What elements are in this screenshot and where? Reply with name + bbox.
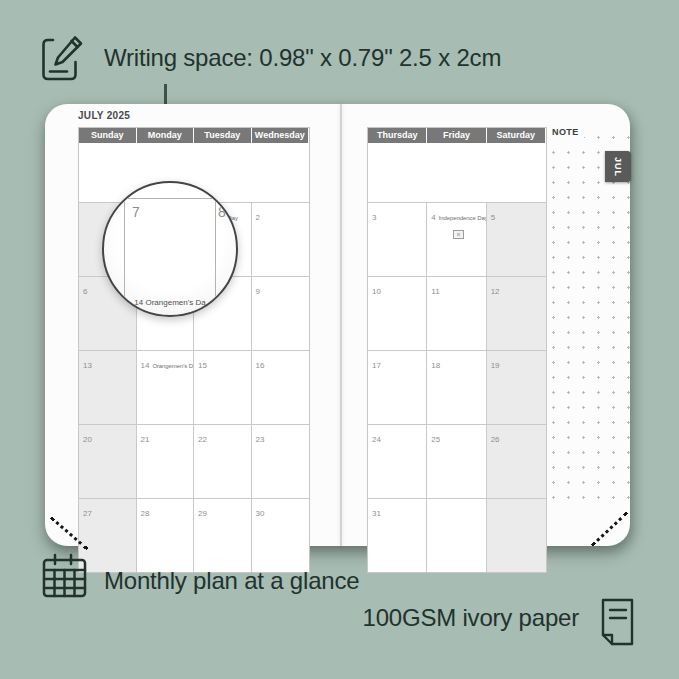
day-header-sunday: Sunday	[79, 128, 137, 143]
day-number: 10	[372, 287, 381, 296]
day-header-friday: Friday	[427, 128, 486, 143]
holiday-label: Independence Day	[439, 215, 487, 221]
calendar-cell: 13	[79, 350, 137, 424]
page-title: JULY 2025	[78, 110, 130, 121]
calendar-cell: 16	[252, 350, 310, 424]
note-pencil-icon	[37, 33, 86, 84]
calendar-cell: 26	[487, 424, 546, 498]
paper-sheet-icon	[594, 596, 640, 649]
month-tab-label: JUL	[613, 156, 623, 176]
day-number: 18	[431, 361, 440, 370]
day-number: 9	[256, 287, 260, 296]
calendar-cell: 5	[487, 202, 546, 276]
calendar-cell	[487, 498, 546, 572]
calendar-cell: 25	[427, 424, 486, 498]
day-header-wednesday: Wednesday	[252, 128, 310, 143]
planner-spread: JULY 2025 SundayMondayTuesdayWednesday1C…	[45, 104, 630, 546]
day-number: 27	[83, 509, 92, 518]
day-number: 16	[256, 361, 265, 370]
calendar-cell: 29	[194, 498, 252, 572]
flag-row	[431, 225, 484, 243]
day-number: 2	[256, 213, 260, 222]
magnifier-circle: 7 8 14 Orangemen's Da	[102, 181, 238, 317]
calendar-cell: 12	[487, 276, 546, 350]
calendar-cell: 10	[368, 276, 427, 350]
calendar-cell: 20	[79, 424, 137, 498]
day-number: 17	[372, 361, 381, 370]
calendar-icon	[39, 551, 90, 602]
day-number: 12	[491, 287, 500, 296]
us-flag-icon	[453, 230, 464, 239]
day-number: 6	[83, 287, 87, 296]
day-header-monday: Monday	[137, 128, 195, 143]
day-number: 26	[491, 435, 500, 444]
calendar-grid-right: ThursdayFridaySaturday34Independence Day…	[367, 127, 547, 573]
day-number: 31	[372, 509, 381, 518]
calendar-cell: 17	[368, 350, 427, 424]
note-dot-grid: NOTE	[552, 127, 630, 511]
day-header-thursday: Thursday	[368, 128, 427, 143]
day-header-tuesday: Tuesday	[194, 128, 252, 143]
calendar-cell: 24	[368, 424, 427, 498]
writing-space-label: Writing space: 0.98" x 0.79" 2.5 x 2cm	[104, 44, 501, 72]
day-number: 24	[372, 435, 381, 444]
monthly-plan-label: Monthly plan at a glance	[104, 567, 359, 595]
day-number: 23	[256, 435, 265, 444]
day-number: 13	[83, 361, 92, 370]
calendar-cell: 11	[427, 276, 486, 350]
calendar-cell: 31	[368, 498, 427, 572]
day-number: 11	[431, 287, 439, 296]
calendar-cell: 23	[252, 424, 310, 498]
calendar-cell: 21	[137, 424, 195, 498]
day-header-saturday: Saturday	[487, 128, 546, 143]
day-number: 29	[198, 509, 207, 518]
calendar-cell: 15	[194, 350, 252, 424]
calendar-cell: 22	[194, 424, 252, 498]
day-number: 25	[431, 435, 440, 444]
holiday-label: Orangemen's Day	[152, 363, 194, 369]
calendar-cell: 9	[252, 276, 310, 350]
day-number: 3	[372, 213, 376, 222]
day-number: 4	[431, 213, 435, 222]
product-image: Writing space: 0.98" x 0.79" 2.5 x 2cm J…	[0, 0, 679, 679]
month-tab-jul: JUL	[605, 151, 631, 182]
calendar-cell: 18	[427, 350, 486, 424]
calendar-cell	[427, 498, 486, 572]
day-number: 28	[141, 509, 150, 518]
spine-divider	[340, 104, 342, 546]
calendar-cell: 3	[368, 202, 427, 276]
day-number: 14	[141, 361, 150, 370]
calendar-cell: 4Independence Day	[427, 202, 486, 276]
calendar-cell: 28	[137, 498, 195, 572]
day-number: 15	[198, 361, 207, 370]
magnified-day-number: 7	[132, 204, 140, 220]
calendar-cell: 19	[487, 350, 546, 424]
day-number: 20	[83, 435, 92, 444]
day-number: 22	[198, 435, 207, 444]
day-number: 19	[491, 361, 500, 370]
note-label: NOTE	[552, 127, 584, 139]
day-number: 30	[256, 509, 265, 518]
day-number: 21	[141, 435, 150, 444]
day-number: 5	[491, 213, 495, 222]
calendar-cell: 30	[252, 498, 310, 572]
paper-label: 100GSM ivory paper	[362, 604, 579, 632]
calendar-cell: 2	[252, 202, 310, 276]
calendar-cell: 14Orangemen's Day	[137, 350, 195, 424]
